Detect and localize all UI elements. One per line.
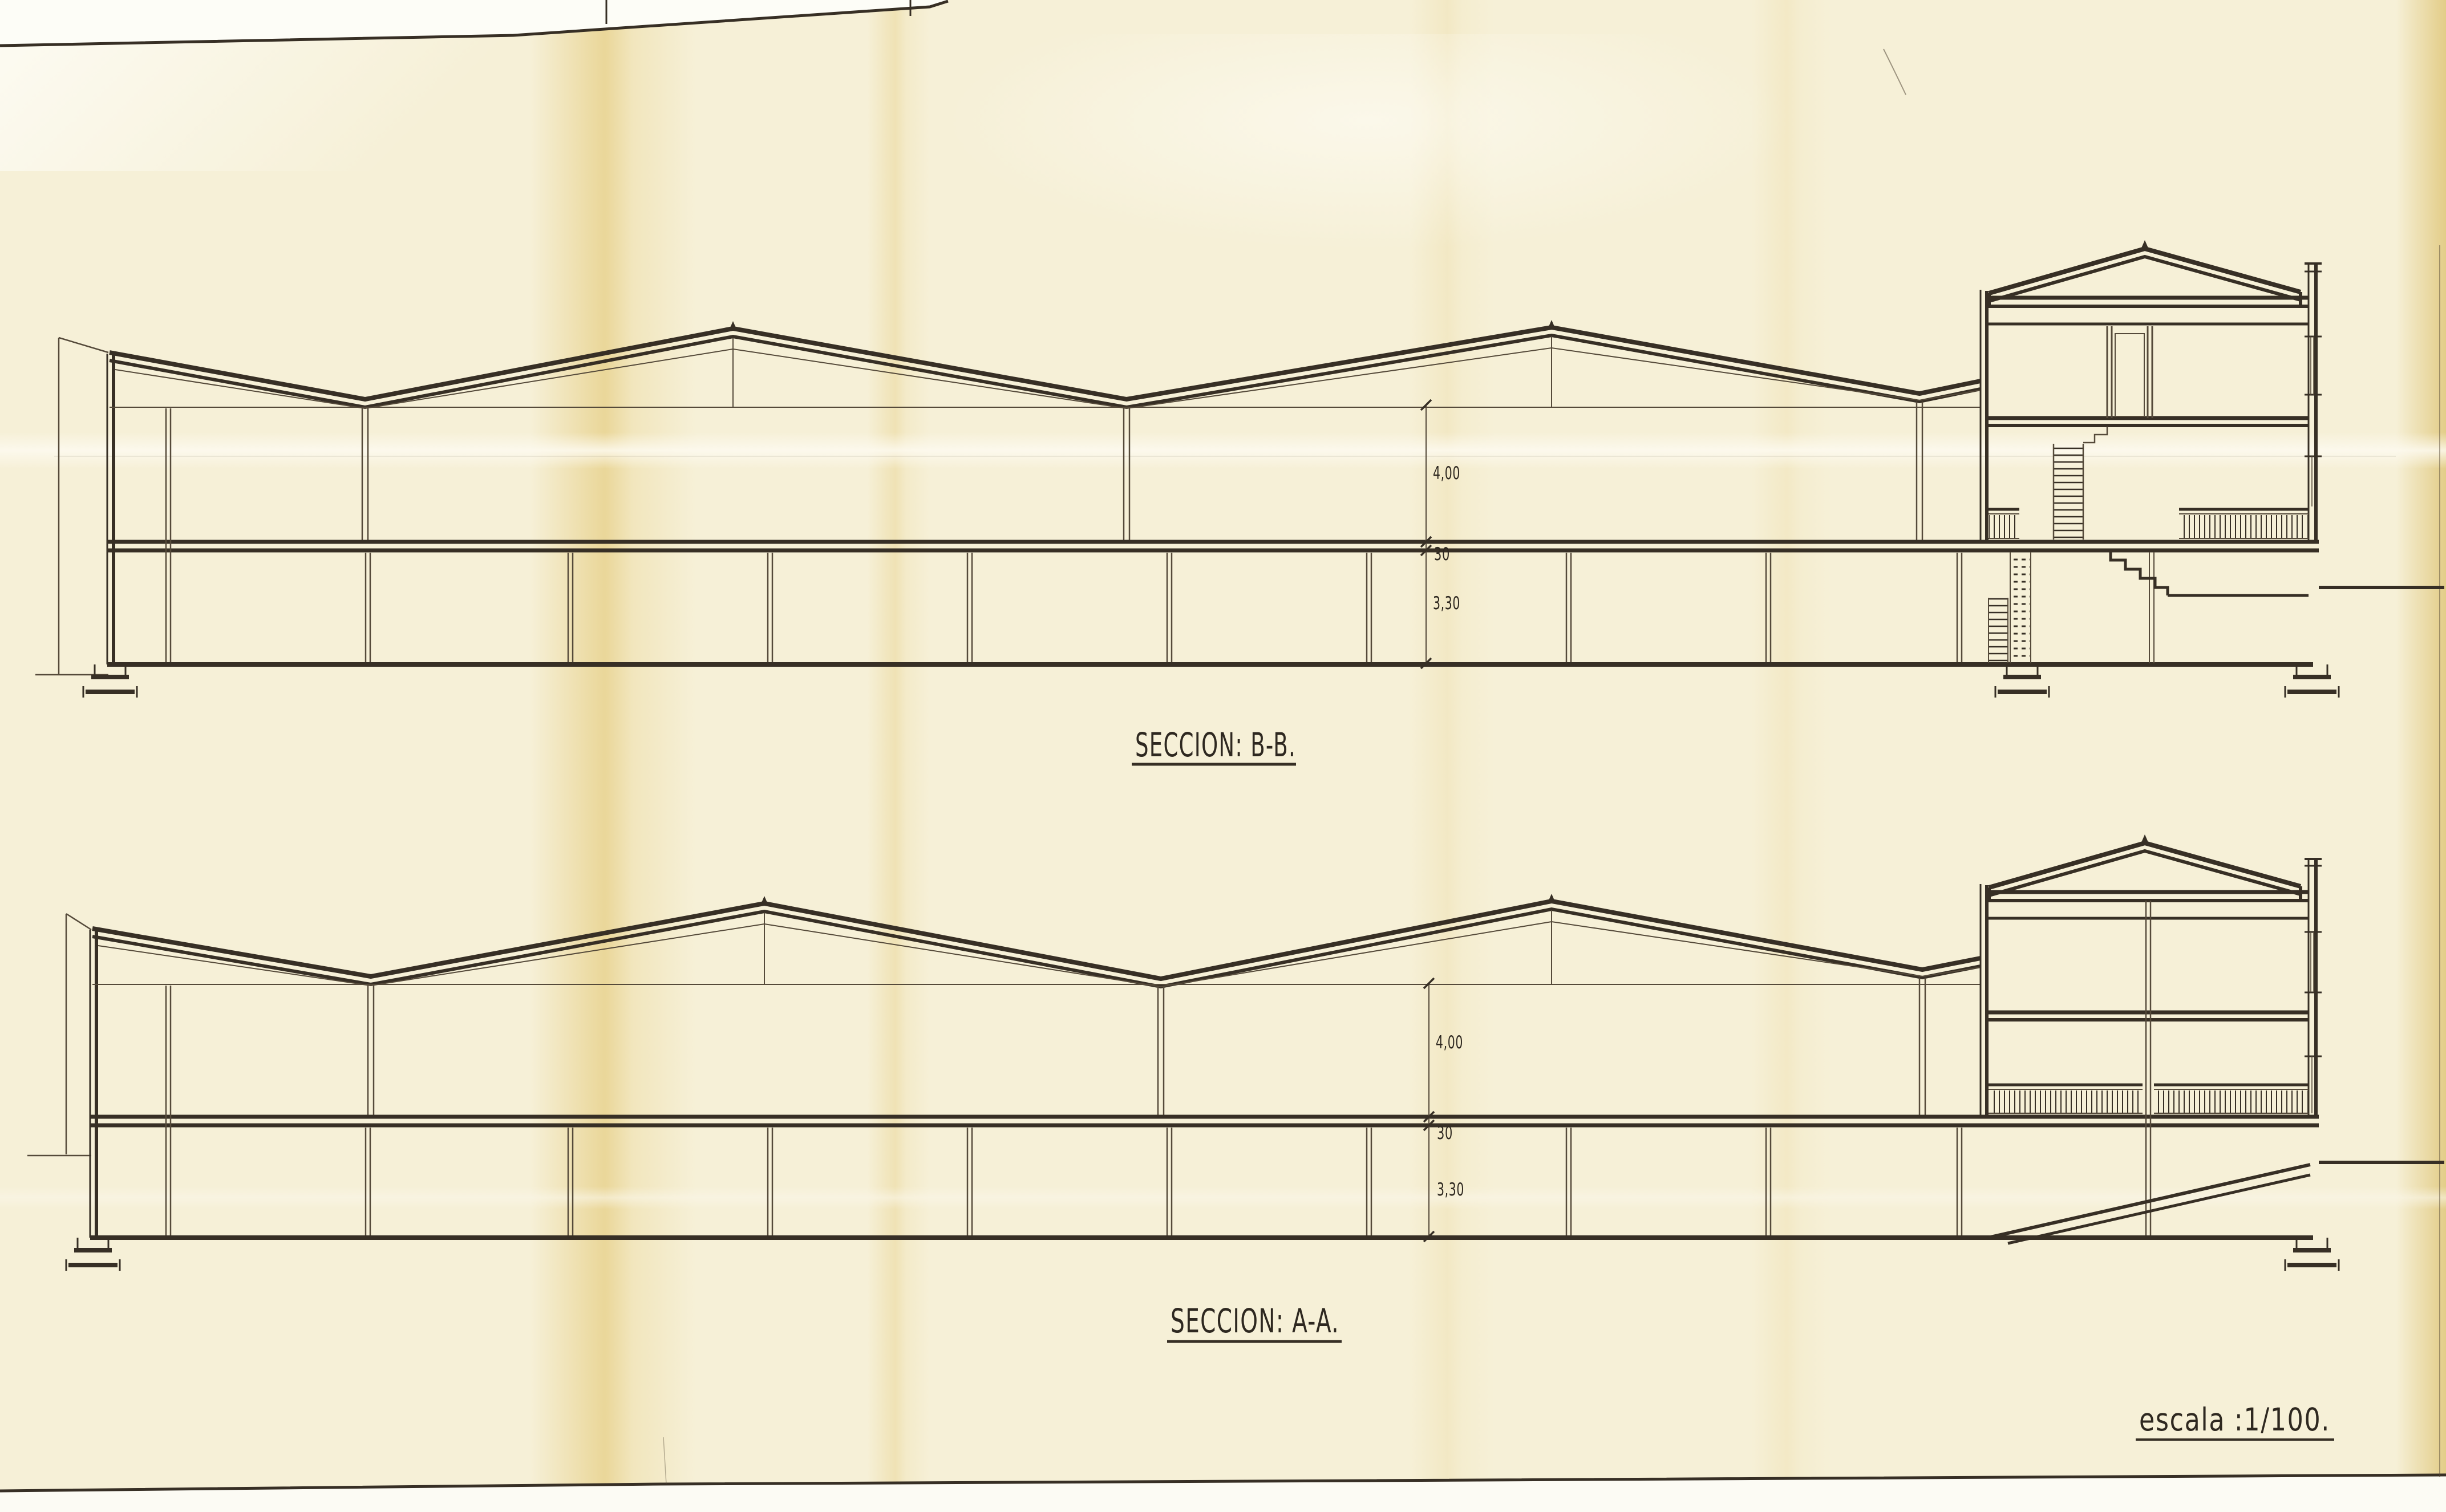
bb-footing-left [83,664,137,698]
bb-railing-left [1989,509,2019,538]
bb-lower-columns [166,408,1962,663]
aa-sawtooth-roof [92,894,1981,987]
bb-exterior-steps [2111,551,2309,595]
aa-left-terrain-line [27,914,91,1156]
bb-left-terrain-line [35,338,108,675]
roof-finial [729,321,737,330]
bb-hatched-wall [2010,552,2031,663]
aa-dimension-stack: 4,00 30 3,30 [1424,978,1464,1242]
scale-label: escala :1/100. [2139,1401,2330,1438]
paper-scratch [1884,49,1906,95]
bb-dim-lower-height: 3,30 [1433,593,1460,614]
aa-railing-right [2154,1085,2309,1113]
aa-lower-columns [166,986,1962,1237]
roof-finial [1548,320,1556,329]
aa-parapet-column [2305,859,2322,1116]
bb-upper-floor-slab [1987,418,2309,425]
bb-railing-right [2179,509,2309,538]
aa-title-block: SECCION: A-A. [1167,1302,1342,1341]
bb-head-building [1981,240,2444,663]
aa-partition [2146,901,2151,1235]
blueprint-sheet: 4,00 30 3,30 SECCION: B-B. [0,0,2446,1512]
paper-crease [663,1437,666,1484]
aa-dim-upper-height: 4,00 [1436,1032,1463,1053]
aa-upper-window [2305,932,2322,992]
bb-dim-slab-thickness: 30 [1434,544,1450,565]
bb-partition [2149,552,2154,663]
aa-valley-columns [368,978,1925,1117]
bb-dimension-stack: 4,00 30 3,30 [1421,400,1460,668]
section-aa-drawing: 4,00 30 3,30 SECCION: A-A. [27,834,2444,1341]
section-bb-title: SECCION: B-B. [1135,725,1296,764]
aa-left-wall [90,930,96,1238]
bb-floor-slab [107,542,2319,550]
bb-left-wall [107,354,114,664]
bb-sawtooth-roof [110,320,1981,408]
bb-valley-columns [362,402,1922,542]
bb-footing-right [2285,664,2339,698]
aa-upper-floor-slab [1987,1012,2309,1020]
scale-block: escala :1/100. [2136,1401,2334,1440]
section-aa-title: SECCION: A-A. [1171,1302,1339,1340]
bb-stair-flight-upper [2054,427,2107,540]
aa-floor-slab [90,1117,2319,1125]
bb-stair-flight-lower [1989,598,2008,663]
aa-railing-left [1989,1085,2143,1113]
aa-head-building [1981,834,2444,1243]
aa-dim-lower-height: 3,30 [1437,1179,1464,1200]
aa-dim-slab-thickness: 30 [1437,1123,1453,1144]
aa-footing-left [66,1238,120,1271]
drawing-canvas: 4,00 30 3,30 SECCION: B-B. [0,0,2446,1512]
aa-footing-right [2285,1238,2339,1271]
bb-upper-door [2107,326,2152,418]
bb-footing-mid [1995,664,2049,698]
section-bb-drawing: 4,00 30 3,30 SECCION: B-B. [35,240,2444,764]
bb-dim-upper-height: 4,00 [1433,463,1460,484]
bb-mid-window [2305,456,2322,506]
bb-upper-window [2305,337,2322,395]
aa-ramp [1988,1165,2310,1243]
bb-title-block: SECCION: B-B. [1132,725,1296,764]
